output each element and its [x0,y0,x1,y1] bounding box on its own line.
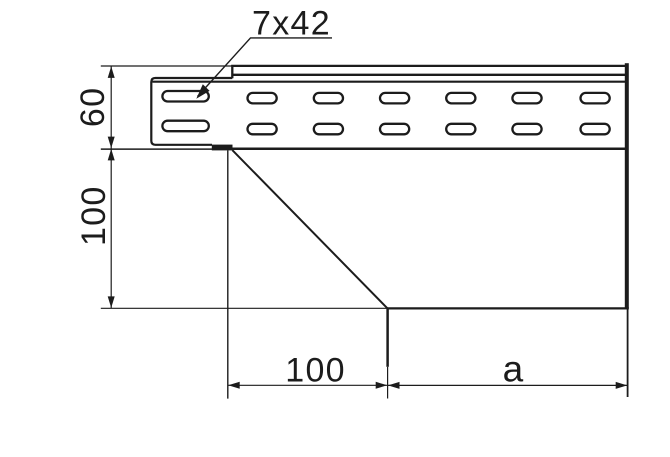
svg-text:a: a [503,349,524,390]
svg-text:100: 100 [285,352,346,390]
svg-text:60: 60 [74,87,112,127]
svg-text:7x42: 7x42 [252,5,331,43]
svg-text:100: 100 [75,185,113,246]
